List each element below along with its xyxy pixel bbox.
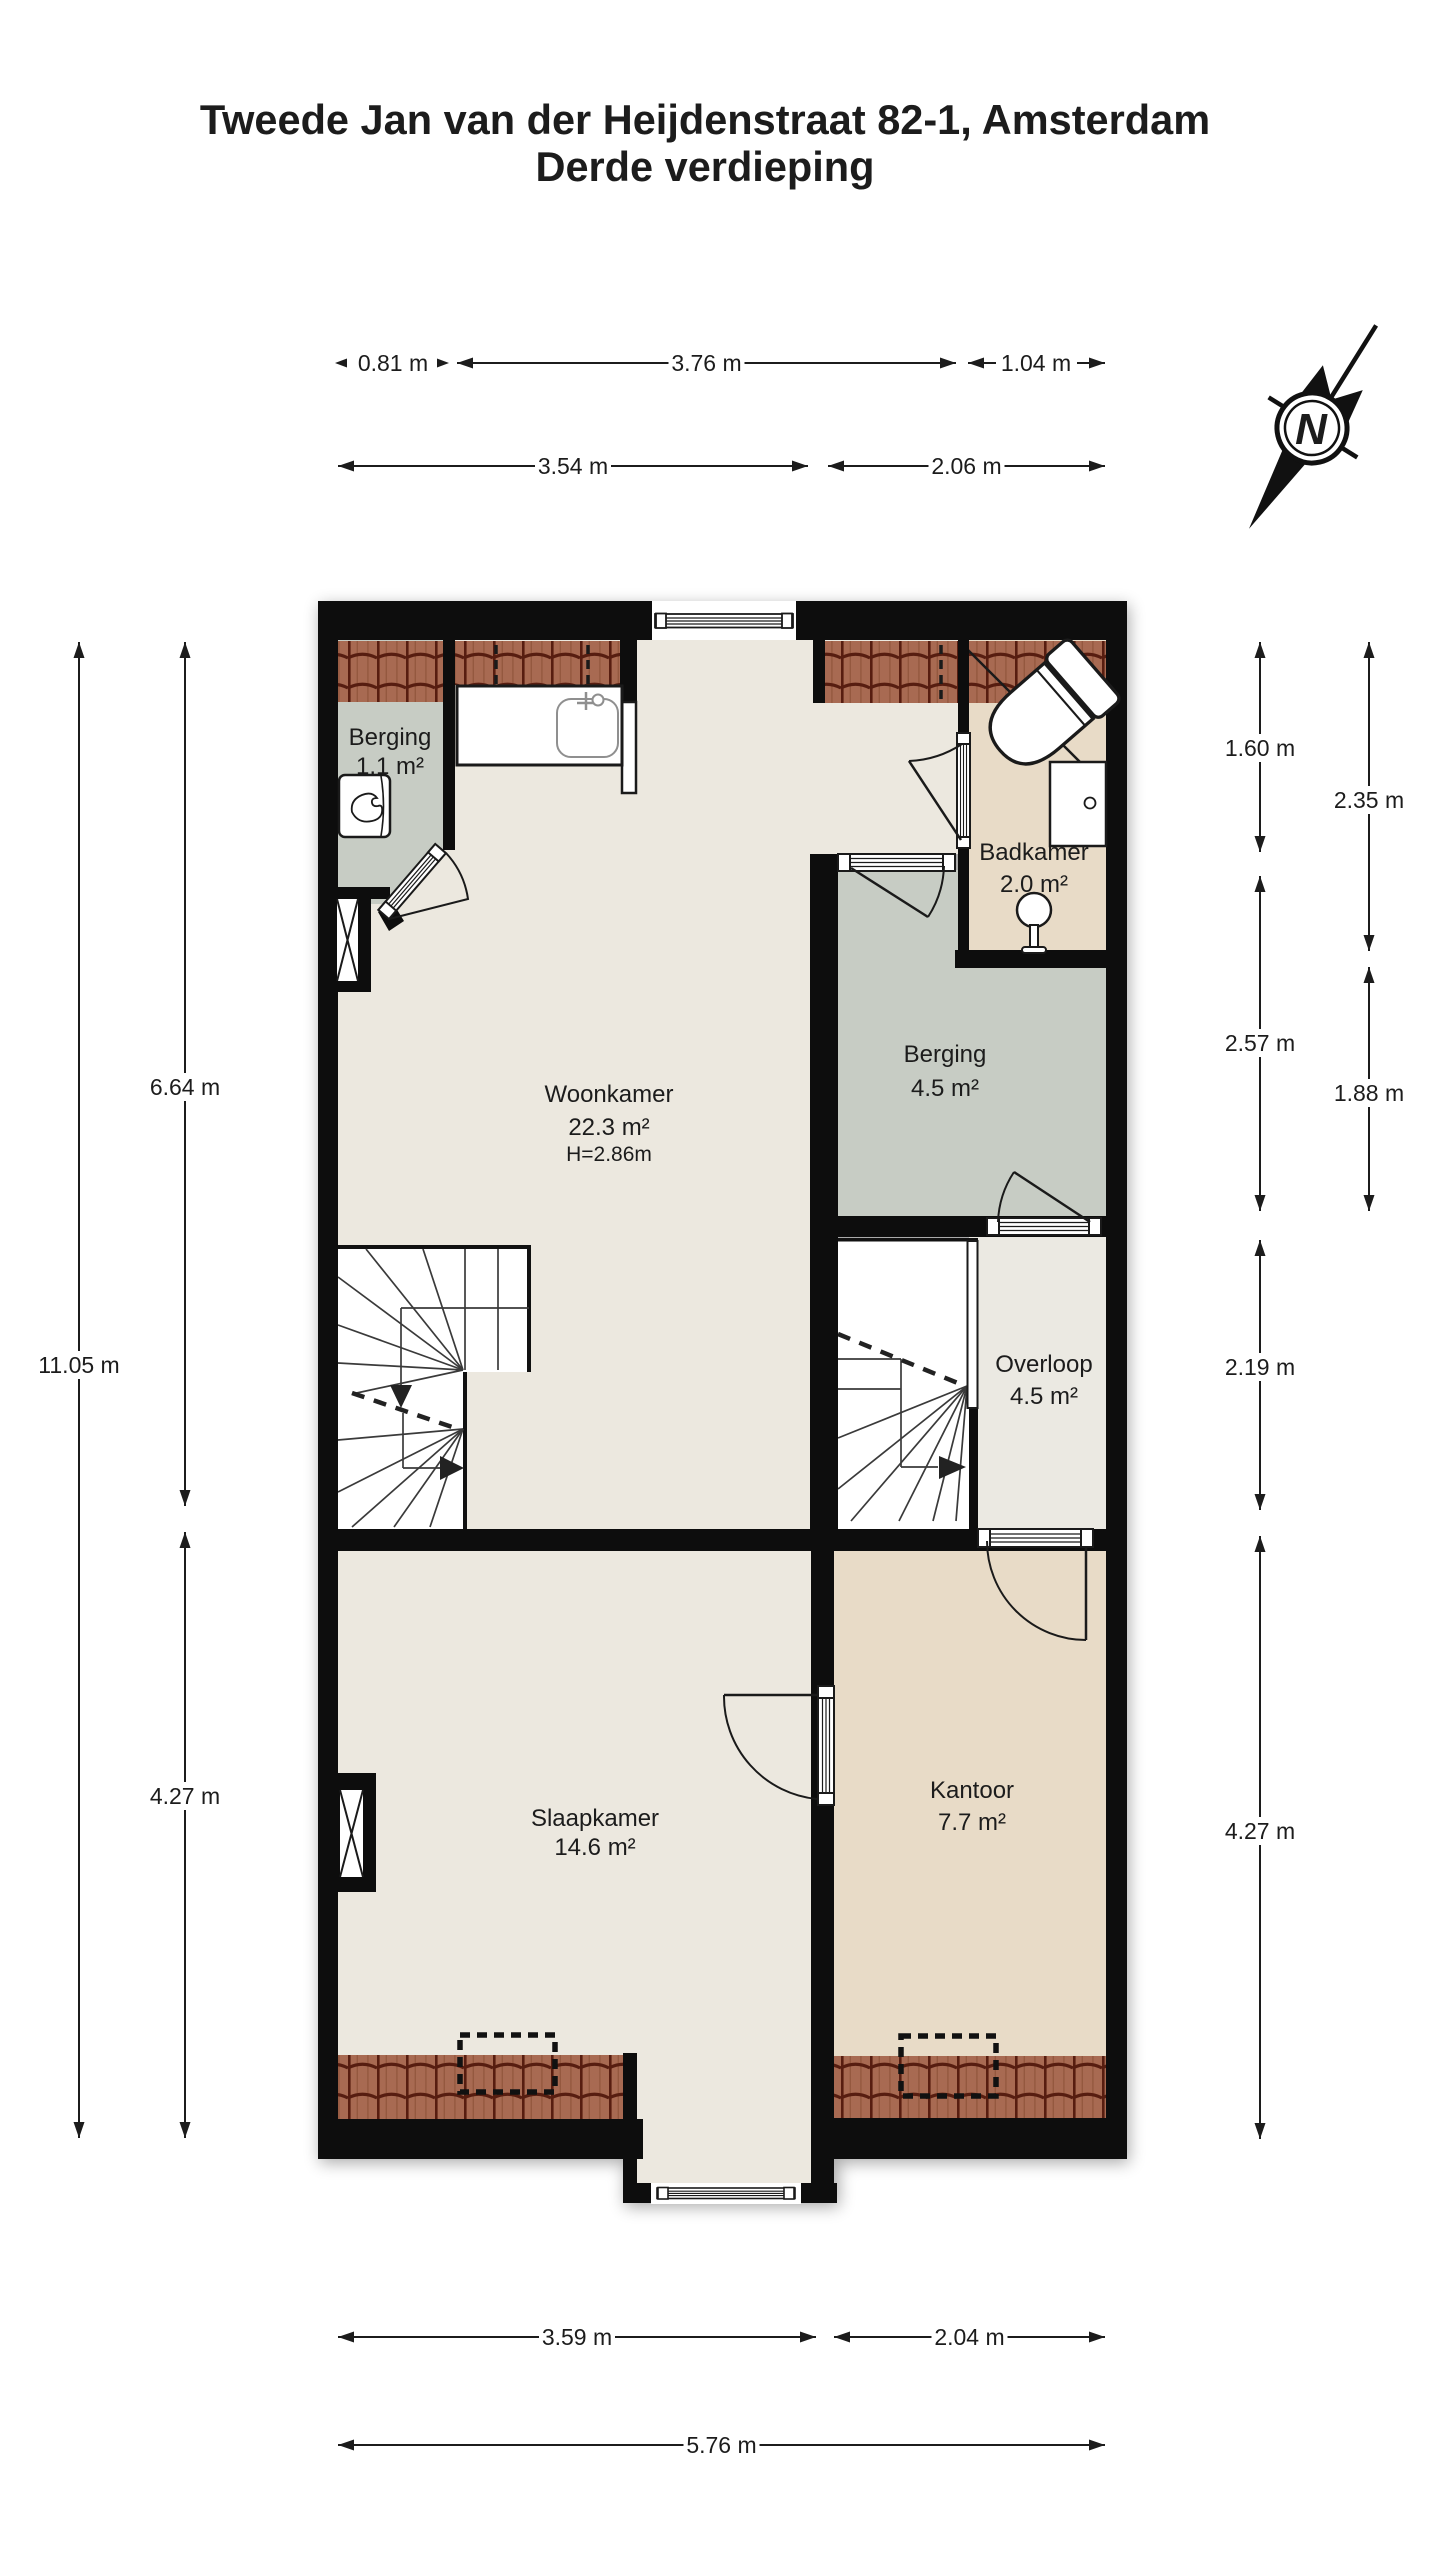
svg-text:N: N (1295, 405, 1328, 454)
svg-text:Woonkamer: Woonkamer (545, 1081, 674, 1108)
svg-text:Badkamer: Badkamer (979, 839, 1088, 866)
svg-text:1.60 m: 1.60 m (1225, 735, 1295, 761)
svg-text:Berging: Berging (349, 724, 432, 751)
svg-text:6.64 m: 6.64 m (150, 1074, 220, 1100)
svg-text:2.19 m: 2.19 m (1225, 1354, 1295, 1380)
svg-text:11.05 m: 11.05 m (38, 1352, 119, 1378)
svg-text:7.7 m²: 7.7 m² (938, 1809, 1006, 1836)
svg-text:1.88 m: 1.88 m (1334, 1080, 1404, 1106)
svg-text:Berging: Berging (904, 1041, 987, 1068)
svg-text:1.04 m: 1.04 m (1001, 350, 1071, 376)
svg-text:4.5 m²: 4.5 m² (911, 1075, 979, 1102)
svg-text:4.27 m: 4.27 m (1225, 1818, 1295, 1844)
svg-text:2.06 m: 2.06 m (931, 453, 1001, 479)
svg-text:14.6 m²: 14.6 m² (554, 1834, 635, 1861)
svg-text:Kantoor: Kantoor (930, 1777, 1014, 1804)
svg-text:22.3 m²: 22.3 m² (568, 1114, 649, 1141)
svg-text:1.1 m²: 1.1 m² (356, 753, 424, 780)
svg-text:2.57 m: 2.57 m (1225, 1030, 1295, 1056)
svg-text:0.81 m: 0.81 m (358, 350, 428, 376)
svg-text:3.59 m: 3.59 m (542, 2324, 612, 2350)
svg-text:Overloop: Overloop (995, 1351, 1092, 1378)
svg-text:Tweede Jan van der Heijdenstra: Tweede Jan van der Heijdenstraat 82-1, A… (200, 96, 1210, 143)
svg-text:Slaapkamer: Slaapkamer (531, 1805, 659, 1832)
svg-text:2.35 m: 2.35 m (1334, 787, 1404, 813)
svg-text:H=2.86m: H=2.86m (566, 1143, 652, 1166)
svg-text:4.27 m: 4.27 m (150, 1783, 220, 1809)
svg-text:3.54 m: 3.54 m (538, 453, 608, 479)
svg-text:4.5 m²: 4.5 m² (1010, 1383, 1078, 1410)
svg-text:2.04 m: 2.04 m (934, 2324, 1004, 2350)
svg-text:5.76 m: 5.76 m (686, 2432, 756, 2458)
svg-text:Derde verdieping: Derde verdieping (535, 143, 874, 190)
svg-text:3.76 m: 3.76 m (671, 350, 741, 376)
svg-text:2.0 m²: 2.0 m² (1000, 871, 1068, 898)
